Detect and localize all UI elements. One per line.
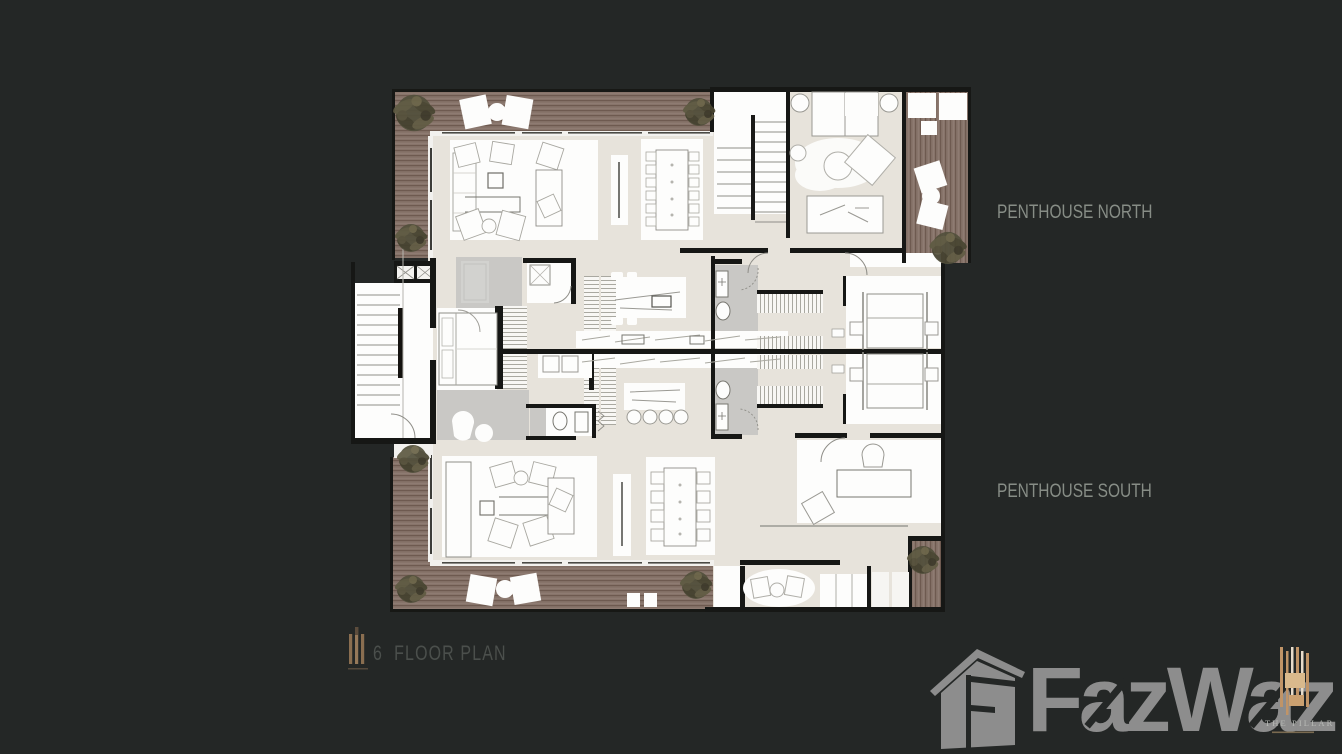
svg-text:THE PILLAR: THE PILLAR <box>1265 718 1334 728</box>
